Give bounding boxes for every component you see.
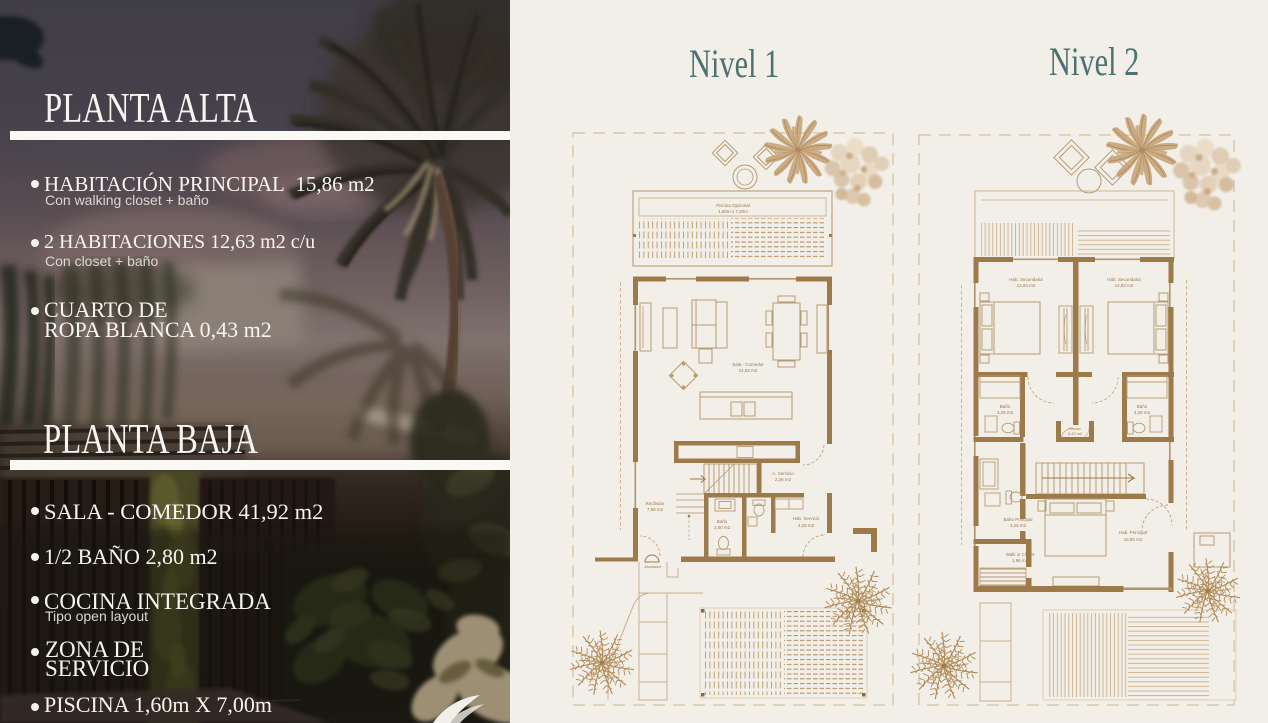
svg-text:0,43 m2: 0,43 m2 [1068,431,1083,436]
svg-text:1,60m x 7,00m: 1,60m x 7,00m [718,209,748,214]
svg-text:15,86 m2: 15,86 m2 [1124,537,1143,542]
svg-text:4,25 m2: 4,25 m2 [1010,523,1027,528]
svg-text:3,26 m2: 3,26 m2 [1134,410,1151,415]
svg-text:12,83 m2: 12,83 m2 [1115,283,1134,288]
svg-text:7,56 m2: 7,56 m2 [647,507,664,512]
svg-text:Baño Principal: Baño Principal [1003,517,1032,522]
svg-text:2,25 m2: 2,25 m2 [775,477,792,482]
svg-text:Piscina Opcional: Piscina Opcional [716,203,750,208]
svg-text:Hab. Servicio: Hab. Servicio [793,516,820,521]
svg-text:Hab. Secundaria: Hab. Secundaria [1107,277,1141,282]
svg-text:Baño: Baño [717,519,728,524]
svg-text:Hab. Secundaria: Hab. Secundaria [1009,277,1043,282]
svg-text:Asoleador: Asoleador [644,565,662,569]
svg-text:Hab. Principal: Hab. Principal [1119,530,1147,535]
svg-text:41,92 m2: 41,92 m2 [739,368,758,373]
svg-text:2,80 m2: 2,80 m2 [714,525,731,530]
svg-text:Baño: Baño [1000,404,1011,409]
svg-text:A. Servicio: A. Servicio [772,471,794,476]
svg-text:Recibidor: Recibidor [645,501,665,506]
svg-text:3,26 m2: 3,26 m2 [997,410,1014,415]
svg-text:Baño: Baño [1137,404,1148,409]
svg-text:12,83 m2: 12,83 m2 [1017,283,1036,288]
svg-text:Sala - Comedor: Sala - Comedor [732,362,764,367]
svg-text:4,25 m2: 4,25 m2 [798,523,815,528]
